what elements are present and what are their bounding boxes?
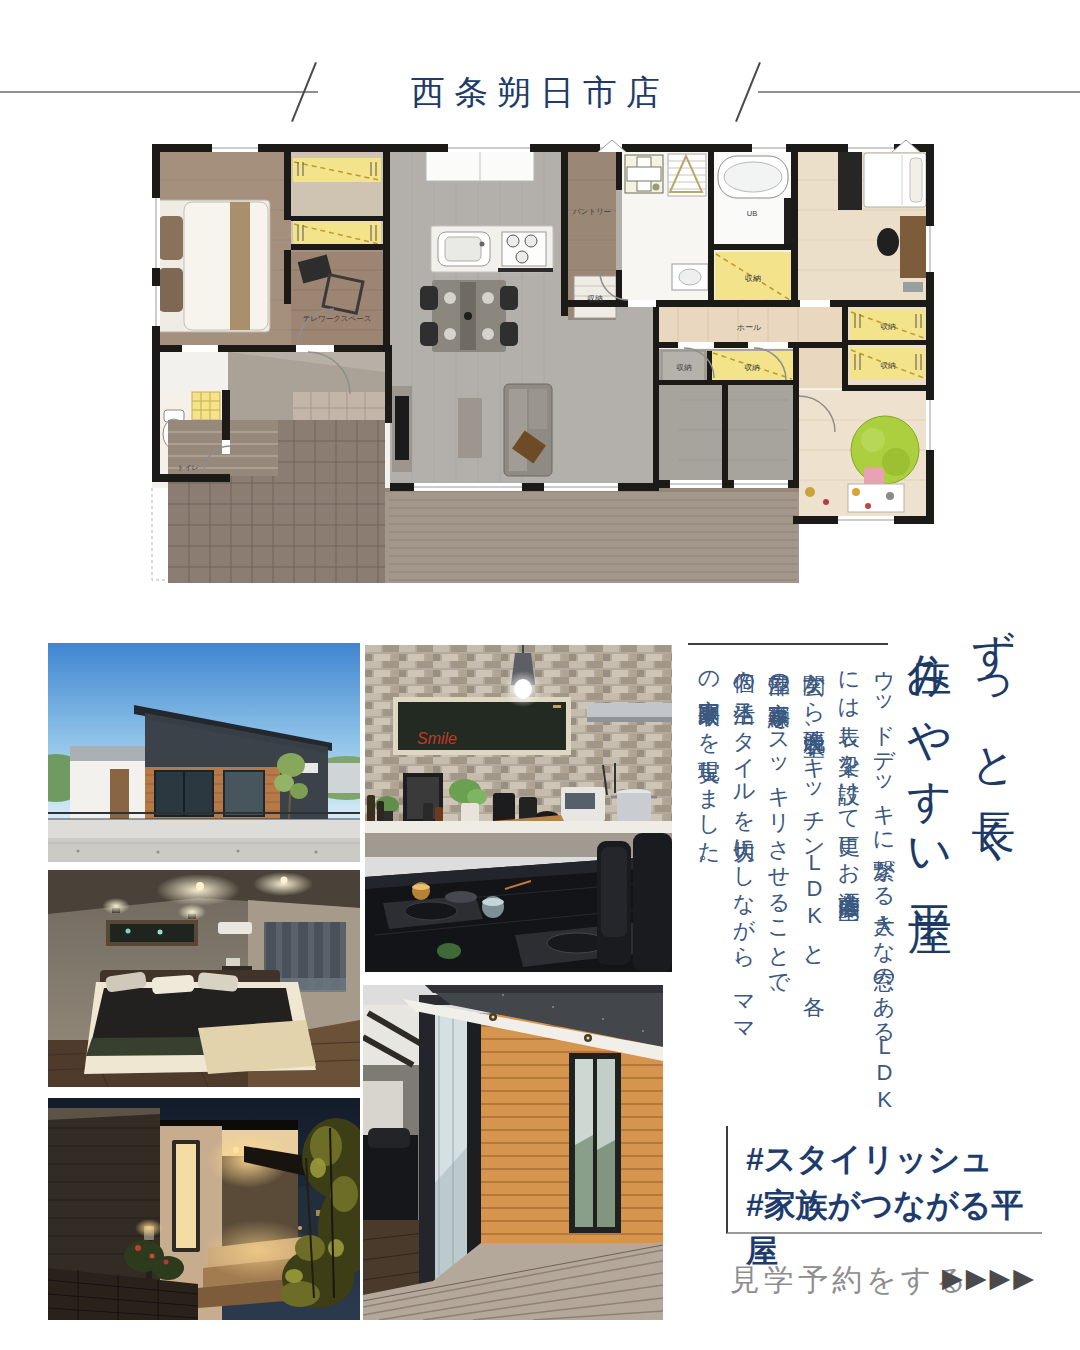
laundry-icon [625,155,663,193]
title-line-2: 住みやすい平屋 [897,596,961,1036]
body-line: 部屋の家事動線をスッキリさせることで、 [762,656,797,1118]
wood-deck [385,492,799,583]
label-telework: テレワークスペース [303,314,372,323]
label-pantry: パントリー [572,207,611,216]
kitchen-island-icon [431,226,553,272]
label-toilet: トイレ [177,464,199,471]
washbasin-icon [672,264,708,290]
bed2-icon [864,153,926,207]
label-storage: 収納 [677,363,693,372]
chair-icon [877,228,899,256]
reservation-cta[interactable]: 見学予約をする ▶▶▶▶ [726,1252,1056,1312]
label-bath: UB [747,209,757,218]
photo-entrance-night [48,1098,360,1320]
floor-plan-drawing: テレワークスペース パントリー 収納 収納 収納 収納 収納 収納 ホール トイ… [148,140,948,592]
label-storage: 収納 [881,361,897,370]
label-storage: 収納 [588,294,604,303]
closet-2 [293,221,381,246]
label-storage: 収納 [745,363,761,372]
hashtag-1: #スタイリッシュ [746,1136,1042,1182]
sofa-icon [504,384,552,476]
body-line: ウッドデッキに繋がる大きな窓のあるLDK [867,656,902,1118]
body-line: には表し梁を設けて更にお洒落広々空間に。 [832,656,867,1118]
header-line-right [758,91,1080,93]
photo-kitchen: Smile [365,645,672,972]
dining-table-icon [420,280,518,352]
tv-icon [395,396,409,460]
forward-arrows-icon: ▶▶▶▶ [942,1262,1037,1294]
label-storage: 収納 [881,322,897,331]
description-text: ウッドデッキに繋がる大きな窓のあるLDK には表し梁を設けて更にお洒落広々空間に… [682,656,902,1118]
desk-icon [900,216,926,278]
bed-icon [156,200,270,332]
photo-exterior [48,643,360,862]
tree-icon [851,416,919,484]
range-hood-icon [587,703,672,719]
reservation-cta-label: 見学予約をする [730,1260,970,1301]
body-divider-line [688,643,888,645]
wardrobe-icon [838,152,862,210]
body-line: 個々の生活スタイルを大切にしながら、ママ [727,656,762,1118]
closet-1 [293,158,381,182]
hashtag-block: #スタイリッシュ #家族がつながる平屋 [726,1126,1042,1234]
floor-plan: テレワークスペース パントリー 収納 収納 収納 収納 収納 収納 ホール トイ… [148,140,948,592]
title-line-1: ずっと長く [961,596,1025,1036]
catchphrase-title: ずっと長く 住みやすい平屋 [885,596,1025,1036]
photo-wood-deck [363,985,663,1320]
kids-chair-icon [864,468,884,486]
photo-bedroom [48,870,360,1087]
label-storage: 収納 [745,274,761,283]
bench-icon [458,398,482,458]
bathtub-icon [718,156,788,198]
body-line: 玄関から洗面脱衣室、キッチンLDKと、各 [797,656,832,1118]
chalkboard-sign-text: Smile [417,730,457,747]
label-hall: ホール [737,323,762,332]
store-name-title: 西条朔日市店 [0,70,1080,116]
body-line: の家事楽間取りを実現しました。 [692,656,727,1118]
